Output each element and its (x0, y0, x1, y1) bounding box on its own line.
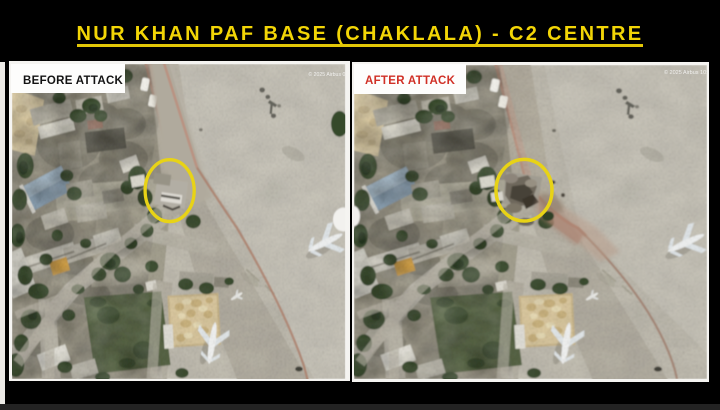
svg-text:© 2025 Airbus 10:45: © 2025 Airbus 10:45 (664, 69, 714, 76)
svg-text:AFTER ATTACK: AFTER ATTACK (365, 75, 456, 87)
svg-text:BEFORE ATTACK: BEFORE ATTACK (23, 75, 124, 87)
